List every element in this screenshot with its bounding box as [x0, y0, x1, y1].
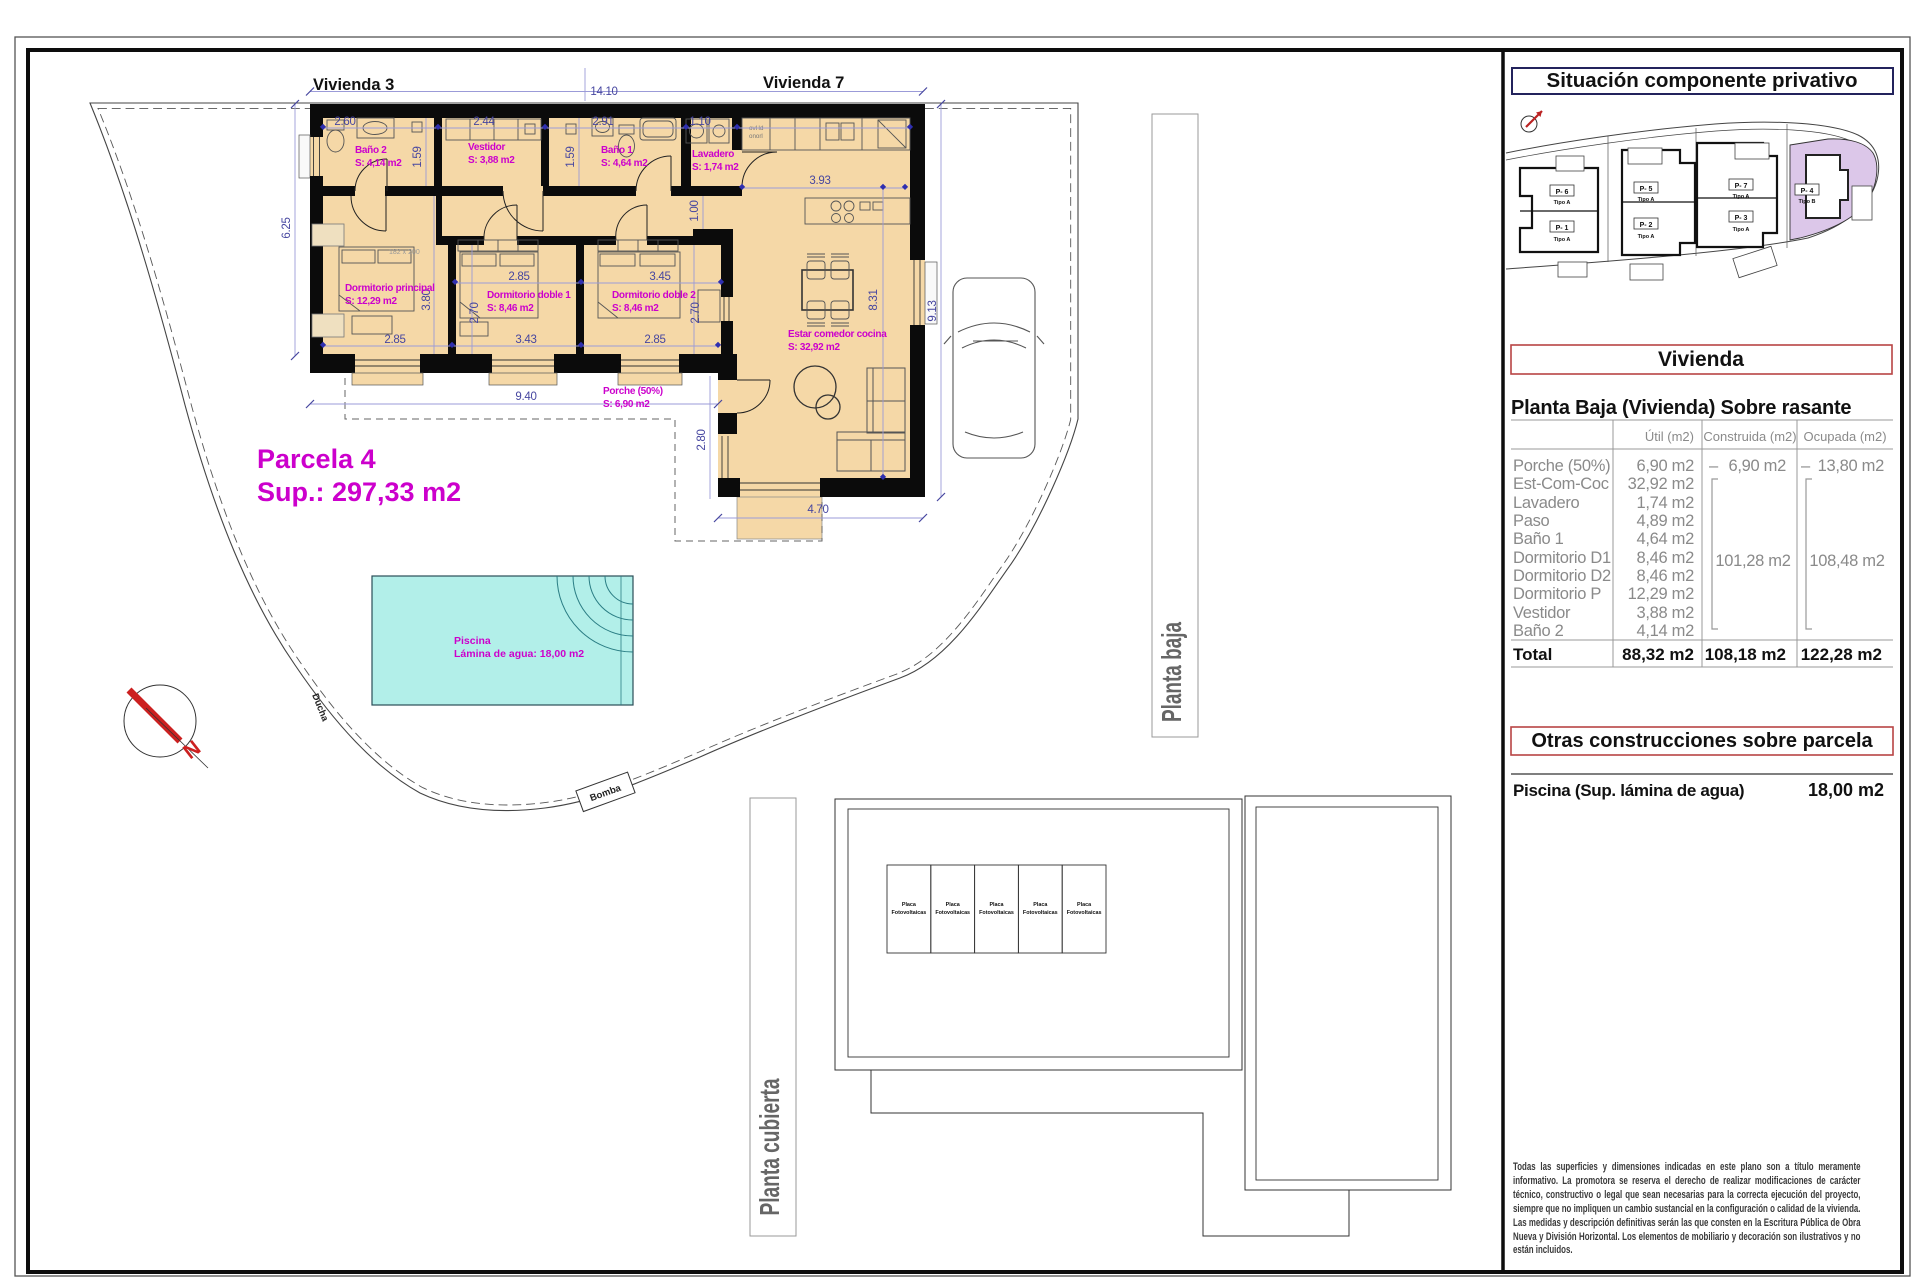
- svg-text:Otras construcciones sobre par: Otras construcciones sobre parcela: [1531, 730, 1873, 752]
- svg-text:Baño 1: Baño 1: [601, 145, 633, 156]
- svg-text:1.00: 1.00: [689, 200, 701, 221]
- svg-text:Dormitorio D2: Dormitorio D2: [1513, 567, 1611, 585]
- svg-text:18,00 m2: 18,00 m2: [1808, 780, 1884, 800]
- svg-text:Fotovoltaicas: Fotovoltaicas: [1023, 910, 1058, 916]
- svg-text:Porche (50%): Porche (50%): [603, 386, 663, 397]
- svg-text:88,32 m2: 88,32 m2: [1622, 645, 1694, 664]
- svg-text:S: 8,46 m2: S: 8,46 m2: [487, 303, 534, 314]
- svg-text:108,48 m2: 108,48 m2: [1809, 552, 1884, 570]
- svg-text:Baño 1: Baño 1: [1513, 530, 1564, 548]
- svg-text:Lavadero: Lavadero: [1513, 494, 1580, 512]
- svg-text:Est-Com-Coc: Est-Com-Coc: [1513, 475, 1609, 493]
- svg-text:Tipo A: Tipo A: [1638, 234, 1655, 240]
- svg-text:Placa: Placa: [1077, 902, 1092, 908]
- svg-text:2.85: 2.85: [508, 271, 529, 283]
- svg-text:P- 3: P- 3: [1735, 215, 1748, 222]
- svg-text:3,88 m2: 3,88 m2: [1636, 604, 1694, 622]
- svg-text:onorl: onorl: [749, 133, 763, 140]
- svg-text:Vestidor: Vestidor: [468, 142, 505, 153]
- svg-text:4,14 m2: 4,14 m2: [1636, 622, 1694, 640]
- svg-text:Dormitorio doble 1: Dormitorio doble 1: [487, 290, 571, 301]
- svg-text:2.85: 2.85: [384, 334, 405, 346]
- svg-text:–: –: [1801, 457, 1811, 475]
- svg-text:1.59: 1.59: [565, 146, 577, 167]
- svg-text:Dormitorio D1: Dormitorio D1: [1513, 549, 1611, 567]
- svg-text:2.60: 2.60: [334, 116, 355, 128]
- svg-text:Placa: Placa: [1033, 902, 1048, 908]
- svg-text:P- 2: P- 2: [1640, 222, 1653, 229]
- svg-text:Fotovoltaicas: Fotovoltaicas: [892, 910, 927, 916]
- svg-text:P- 5: P- 5: [1640, 186, 1653, 193]
- svg-text:122,28 m2: 122,28 m2: [1801, 645, 1882, 664]
- svg-text:S: 4,64 m2: S: 4,64 m2: [601, 158, 648, 169]
- svg-text:Piscina: Piscina: [454, 635, 491, 647]
- svg-text:Porche (50%): Porche (50%): [1513, 457, 1610, 475]
- svg-text:Paso: Paso: [1513, 512, 1550, 530]
- svg-text:101,28 m2: 101,28 m2: [1715, 552, 1790, 570]
- svg-text:P- 1: P- 1: [1556, 225, 1569, 232]
- svg-text:Piscina (Sup. lámina de agua): Piscina (Sup. lámina de agua): [1513, 781, 1744, 800]
- svg-text:Útil (m2): Útil (m2): [1645, 429, 1694, 444]
- svg-text:Baño 2: Baño 2: [1513, 622, 1564, 640]
- svg-text:6,90 m2: 6,90 m2: [1636, 457, 1694, 475]
- svg-text:S: 1,74 m2: S: 1,74 m2: [692, 162, 739, 173]
- svg-text:Estar comedor cocina: Estar comedor cocina: [788, 329, 887, 340]
- svg-text:Vivienda 3: Vivienda 3: [313, 76, 394, 94]
- svg-text:Tipo A: Tipo A: [1733, 227, 1750, 233]
- svg-text:Fotovoltaicas: Fotovoltaicas: [979, 910, 1014, 916]
- svg-text:1.59: 1.59: [412, 146, 424, 167]
- svg-text:Dormitorio principal: Dormitorio principal: [345, 283, 435, 294]
- svg-text:2.85: 2.85: [644, 334, 665, 346]
- svg-text:6,90 m2: 6,90 m2: [1728, 457, 1786, 475]
- svg-text:Fotovoltaicas: Fotovoltaicas: [1067, 910, 1102, 916]
- svg-text:Planta baja: Planta baja: [1156, 622, 1187, 722]
- svg-text:4,89 m2: 4,89 m2: [1636, 512, 1694, 530]
- svg-text:Tipo B: Tipo B: [1798, 199, 1815, 205]
- svg-text:Total: Total: [1513, 645, 1552, 664]
- svg-text:8.31: 8.31: [868, 289, 880, 310]
- svg-text:182 x 200: 182 x 200: [389, 249, 420, 256]
- svg-text:Placa: Placa: [989, 902, 1004, 908]
- svg-text:Baño 2: Baño 2: [355, 145, 387, 156]
- svg-text:Lavadero: Lavadero: [692, 149, 734, 160]
- svg-text:3.93: 3.93: [809, 175, 830, 187]
- svg-text:S: 4,14 m2: S: 4,14 m2: [355, 158, 402, 169]
- svg-text:P- 6: P- 6: [1556, 189, 1569, 196]
- svg-text:9.40: 9.40: [515, 391, 536, 403]
- svg-text:Lámina de agua: 18,00 m2: Lámina de agua: 18,00 m2: [454, 648, 584, 660]
- svg-text:32,92 m2: 32,92 m2: [1628, 475, 1695, 493]
- svg-text:2.44: 2.44: [473, 116, 495, 128]
- svg-text:P- 7: P- 7: [1735, 183, 1748, 190]
- svg-text:Placa: Placa: [902, 902, 917, 908]
- svg-text:ovHd: ovHd: [749, 125, 764, 132]
- svg-text:Dormitorio doble 2: Dormitorio doble 2: [612, 290, 696, 301]
- svg-text:13,80 m2: 13,80 m2: [1818, 457, 1885, 475]
- svg-text:12,29 m2: 12,29 m2: [1628, 585, 1695, 603]
- svg-text:Ocupada (m2): Ocupada (m2): [1803, 429, 1886, 444]
- svg-text:S: 6,90 m2: S: 6,90 m2: [603, 399, 650, 410]
- svg-text:3.45: 3.45: [649, 271, 670, 283]
- svg-text:Parcela 4: Parcela 4: [257, 444, 376, 474]
- svg-text:Tipo A: Tipo A: [1733, 194, 1750, 200]
- svg-text:Tipo A: Tipo A: [1554, 237, 1571, 243]
- svg-text:Sup.: 297,33 m2: Sup.: 297,33 m2: [257, 477, 461, 507]
- svg-text:8,46 m2: 8,46 m2: [1636, 567, 1694, 585]
- svg-text:14.10: 14.10: [590, 86, 617, 98]
- svg-text:4,64 m2: 4,64 m2: [1636, 530, 1694, 548]
- svg-text:S: 8,46 m2: S: 8,46 m2: [612, 303, 659, 314]
- svg-text:1.10: 1.10: [689, 116, 710, 128]
- svg-text:S: 32,92 m2: S: 32,92 m2: [788, 342, 840, 353]
- svg-text:9.13: 9.13: [927, 300, 939, 321]
- svg-text:Dormitorio P: Dormitorio P: [1513, 585, 1601, 603]
- svg-text:108,18 m2: 108,18 m2: [1705, 645, 1786, 664]
- svg-text:Tipo A: Tipo A: [1638, 197, 1655, 203]
- svg-text:Situación componente privativo: Situación componente privativo: [1547, 69, 1858, 92]
- svg-text:Planta cubierta: Planta cubierta: [754, 1078, 785, 1215]
- svg-text:Vivienda 7: Vivienda 7: [763, 74, 844, 92]
- svg-text:P- 4: P- 4: [1801, 188, 1814, 195]
- svg-text:Vivienda: Vivienda: [1658, 348, 1744, 371]
- svg-text:1,74 m2: 1,74 m2: [1636, 494, 1694, 512]
- svg-text:Planta Baja (Vivienda) Sobre r: Planta Baja (Vivienda) Sobre rasante: [1511, 397, 1851, 419]
- svg-text:S: 12,29 m2: S: 12,29 m2: [345, 296, 397, 307]
- svg-text:Construida (m2): Construida (m2): [1703, 429, 1796, 444]
- svg-text:Placa: Placa: [946, 902, 961, 908]
- svg-text:Fotovoltaicas: Fotovoltaicas: [935, 910, 970, 916]
- svg-text:Vestidor: Vestidor: [1513, 604, 1571, 622]
- svg-text:S: 3,88 m2: S: 3,88 m2: [468, 155, 515, 166]
- svg-text:2.70: 2.70: [690, 302, 702, 323]
- svg-text:–: –: [1709, 457, 1719, 475]
- svg-text:3.43: 3.43: [515, 334, 536, 346]
- svg-text:2.70: 2.70: [469, 302, 481, 323]
- svg-text:2.80: 2.80: [696, 429, 708, 450]
- svg-text:Tipo A: Tipo A: [1554, 200, 1571, 206]
- svg-text:4.70: 4.70: [807, 504, 828, 516]
- svg-text:8,46 m2: 8,46 m2: [1636, 549, 1694, 567]
- svg-text:2.91: 2.91: [592, 116, 613, 128]
- svg-text:6.25: 6.25: [281, 217, 293, 238]
